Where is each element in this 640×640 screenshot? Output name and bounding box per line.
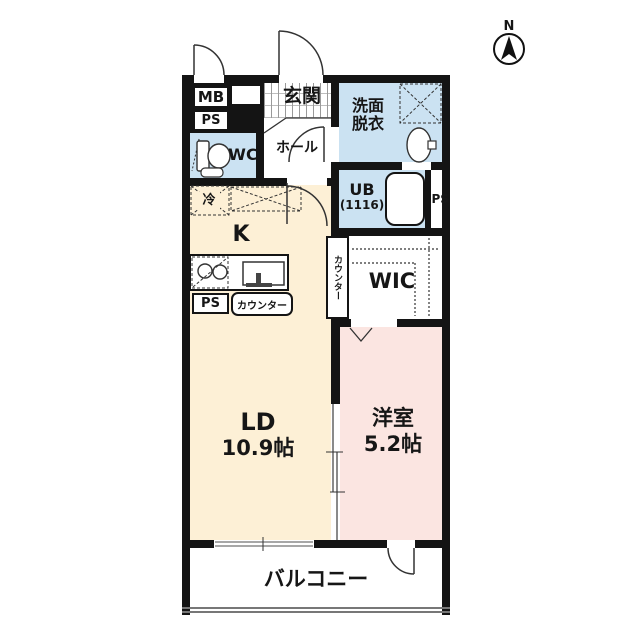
wall-wic-western xyxy=(331,319,351,327)
wall-washroom-bath xyxy=(431,162,442,170)
wall-ld-western xyxy=(331,327,340,404)
pipe-shaft-entrance: PS xyxy=(193,110,229,131)
genkan-step-line xyxy=(264,118,331,133)
western-room-size-label: 5.2帖 xyxy=(343,432,443,456)
western-room-size-text: 5.2帖 xyxy=(364,432,422,456)
kitchen-counter-label-box: カウンター xyxy=(231,292,293,316)
bath-label: UB xyxy=(338,180,386,200)
kitchen-label: K xyxy=(228,222,254,248)
washroom-label: 洗面 脱衣 xyxy=(343,93,393,137)
western-room-label-text: 洋室 xyxy=(372,406,414,430)
balcony-railing xyxy=(182,611,450,613)
wall-bath-wic xyxy=(331,228,442,236)
floor-plan: MB PS PS カウンター カウンター PS xyxy=(0,0,640,640)
wall-hall-ld xyxy=(190,178,287,186)
bath-size-text: (1116) xyxy=(340,199,384,213)
ld-label: LD xyxy=(208,410,308,436)
wall-right xyxy=(442,75,450,615)
entrance-label: 玄関 xyxy=(274,85,330,109)
compass-north-text: N xyxy=(504,20,515,35)
balcony-label-text: バルコニー xyxy=(264,567,369,591)
pipe-shaft-entrance-label: PS xyxy=(202,113,221,128)
ld-label-text: LD xyxy=(240,409,275,437)
wall-middle xyxy=(331,75,339,127)
hall-label-text: ホール xyxy=(276,140,318,156)
washroom-label-text: 洗面 脱衣 xyxy=(352,97,384,134)
bath-size-label: (1116) xyxy=(334,198,390,214)
kitchen-counter-label: カウンター xyxy=(237,297,287,312)
meter-box-door-arc xyxy=(194,45,224,75)
hall-label: ホール xyxy=(266,138,328,158)
wall-top xyxy=(323,75,450,83)
wall-top xyxy=(224,75,279,83)
wic-label-text: WIC xyxy=(369,269,415,293)
wall-wic-western xyxy=(397,319,442,327)
pipe-shaft-bath: PS xyxy=(431,172,443,226)
entrance-door-arc xyxy=(279,31,323,75)
refrigerator-label-text: 冷 xyxy=(202,194,215,209)
balcony-door-arc xyxy=(388,548,414,574)
meter-box: MB xyxy=(193,86,229,108)
wall-bottom xyxy=(182,540,214,548)
ld-side-counter: カウンター xyxy=(326,236,349,319)
pipe-shaft-kitchen: PS xyxy=(192,293,229,314)
pipe-shaft-bath-label: PS xyxy=(432,193,443,206)
balcony-railing xyxy=(182,607,450,609)
refrigerator-label: 冷 xyxy=(198,192,220,210)
meter-box-label: MB xyxy=(198,88,224,106)
bath-label-text: UB xyxy=(349,181,374,199)
ld-size-label: 10.9帖 xyxy=(208,436,308,460)
compass-icon xyxy=(494,34,524,64)
wc-label: WC xyxy=(228,145,258,165)
entrance-label-text: 玄関 xyxy=(283,86,321,108)
shoe-cabinet xyxy=(230,84,262,106)
western-room-label: 洋室 xyxy=(343,406,443,430)
wall-bottom xyxy=(314,540,387,548)
pipe-shaft-kitchen-label: PS xyxy=(201,296,220,311)
room-living-dining xyxy=(190,185,331,540)
wic-label: WIC xyxy=(362,268,422,294)
ld-size-text: 10.9帖 xyxy=(222,436,295,460)
wall-washroom-bath xyxy=(339,162,402,170)
wall-left xyxy=(182,75,190,615)
ld-side-counter-label: カウンター xyxy=(331,255,344,300)
balcony-label: バルコニー xyxy=(246,566,386,592)
wc-label-text: WC xyxy=(228,146,257,164)
kitchen-label-text: K xyxy=(232,222,249,247)
wall-bottom xyxy=(415,540,450,548)
compass-north-label: N xyxy=(501,20,517,35)
